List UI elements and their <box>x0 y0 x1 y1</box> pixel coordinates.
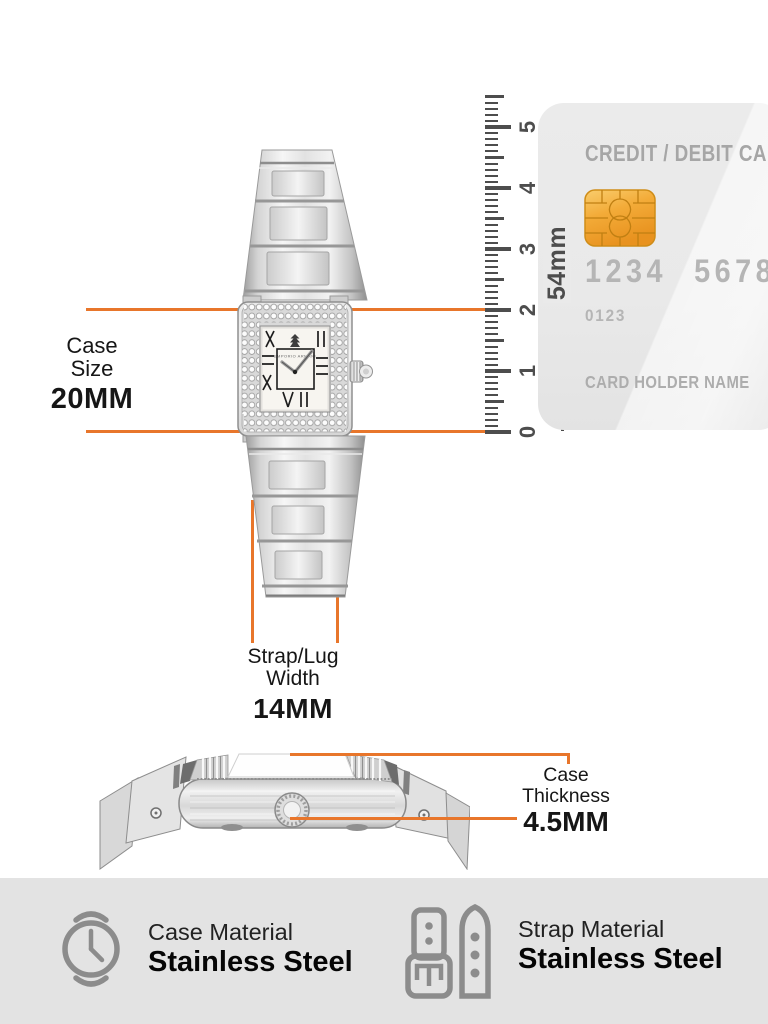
card-number-group1: 1234 <box>585 253 667 290</box>
ruler-tick <box>485 407 498 409</box>
ruler-tick <box>485 199 498 201</box>
ruler-tick <box>485 102 498 104</box>
case-material-label: Case Material <box>148 919 353 945</box>
credit-card-graphic: CREDIT / DEBIT CARD 1234 5678 0123 CARD … <box>538 103 768 430</box>
ruler-tick <box>485 382 498 384</box>
strap-width-word2: Width <box>233 668 353 690</box>
ruler-tick <box>485 272 498 274</box>
ruler-tick <box>485 230 498 232</box>
ruler-tick <box>485 327 498 329</box>
strap-material-label: Strap Material <box>518 916 723 942</box>
ruler-tick <box>485 394 498 396</box>
ruler-tick <box>485 144 498 146</box>
product-dimension-infographic: Case Size 20MM Strap/Lug Width 14MM <box>0 0 768 1024</box>
case-size-word2: Size <box>32 357 152 380</box>
ruler-tick <box>485 315 498 317</box>
ruler-tick <box>485 169 498 171</box>
ruler-tick <box>485 321 498 323</box>
ruler-tick <box>485 369 511 373</box>
ruler-tick <box>485 364 498 366</box>
strap-width-value: 14MM <box>233 693 353 725</box>
ruler-tick <box>485 419 498 421</box>
ruler-tick <box>485 163 498 165</box>
card-number-row: 1234 5678 <box>585 253 768 290</box>
ruler-tick <box>485 376 498 378</box>
card-secondary-number: 0123 <box>585 306 626 326</box>
ruler-tick <box>485 114 498 116</box>
ruler-tick <box>485 224 498 226</box>
ruler-tick <box>485 181 498 183</box>
watch-case-icon <box>58 905 126 993</box>
ruler-tick <box>485 352 498 354</box>
ruler-tick <box>485 285 498 287</box>
watch-front-image: EMPORIO ARMANI <box>225 140 410 602</box>
ruler-tick <box>485 125 511 129</box>
ruler-tick <box>485 156 504 158</box>
ruler-tick <box>485 175 498 177</box>
ruler-tick <box>485 413 498 415</box>
watch-crown <box>350 361 373 382</box>
case-material-value: Stainless Steel <box>148 946 353 978</box>
ruler-tick <box>485 303 498 305</box>
ruler-tick <box>485 132 498 134</box>
card-title: CREDIT / DEBIT CARD <box>585 140 768 167</box>
ruler-tick <box>485 266 498 268</box>
ruler-tick-label: 0 <box>515 419 541 445</box>
card-number-group2: 5678 <box>694 253 768 290</box>
ruler-tick <box>485 211 498 213</box>
ruler-tick <box>485 236 498 238</box>
ruler-tick <box>485 388 498 390</box>
case-thickness-text: Case Thickness <box>496 764 636 808</box>
ruler-tick <box>485 186 511 190</box>
ruler-tick <box>485 339 504 341</box>
ruler-tick <box>485 297 498 299</box>
ruler-tick <box>485 358 498 360</box>
ruler-tick <box>485 217 504 219</box>
ruler-tick <box>485 400 504 402</box>
ruler-tick <box>485 108 498 110</box>
ruler-tick <box>485 138 498 140</box>
ruler-tick <box>485 120 498 122</box>
ruler-tick <box>485 308 511 312</box>
ruler-tick <box>485 278 504 280</box>
case-size-value: 20MM <box>32 383 152 416</box>
ruler-tick <box>485 291 498 293</box>
card-holder-label: CARD HOLDER NAME <box>585 372 750 393</box>
ruler-tick <box>485 242 498 244</box>
ruler-tick <box>485 254 498 256</box>
ruler-tick <box>485 150 498 152</box>
case-thickness-value: 4.5MM <box>517 808 615 838</box>
ruler-tick <box>485 193 498 195</box>
case-thickness-label: Case Thickness 4.5MM <box>496 764 636 838</box>
ruler-tick <box>485 205 498 207</box>
case-size-word1: Case <box>32 334 152 357</box>
ruler-tick <box>485 260 498 262</box>
watch-strap-icon <box>402 900 502 1000</box>
ruler-tick <box>485 333 498 335</box>
case-size-label: Case Size 20MM <box>32 334 152 416</box>
ruler-tick <box>485 247 511 251</box>
strap-material-value: Stainless Steel <box>518 943 723 975</box>
ruler-tick <box>485 430 511 434</box>
case-material-spec: Case Material Stainless Steel <box>58 905 353 993</box>
strap-width-label: Strap/Lug Width 14MM <box>233 646 353 725</box>
strap-width-word1: Strap/Lug <box>233 646 353 668</box>
card-chip-icon <box>584 189 656 247</box>
ruler-tick <box>485 95 504 97</box>
card-height-value: 54mm <box>543 223 571 303</box>
strap-material-spec: Strap Material Stainless Steel <box>402 900 723 1000</box>
ruler: 012345 <box>485 96 541 432</box>
ruler-tick <box>485 425 498 427</box>
ruler-tick <box>485 346 498 348</box>
materials-band: Case Material Stainless Steel Str <box>0 878 768 1024</box>
